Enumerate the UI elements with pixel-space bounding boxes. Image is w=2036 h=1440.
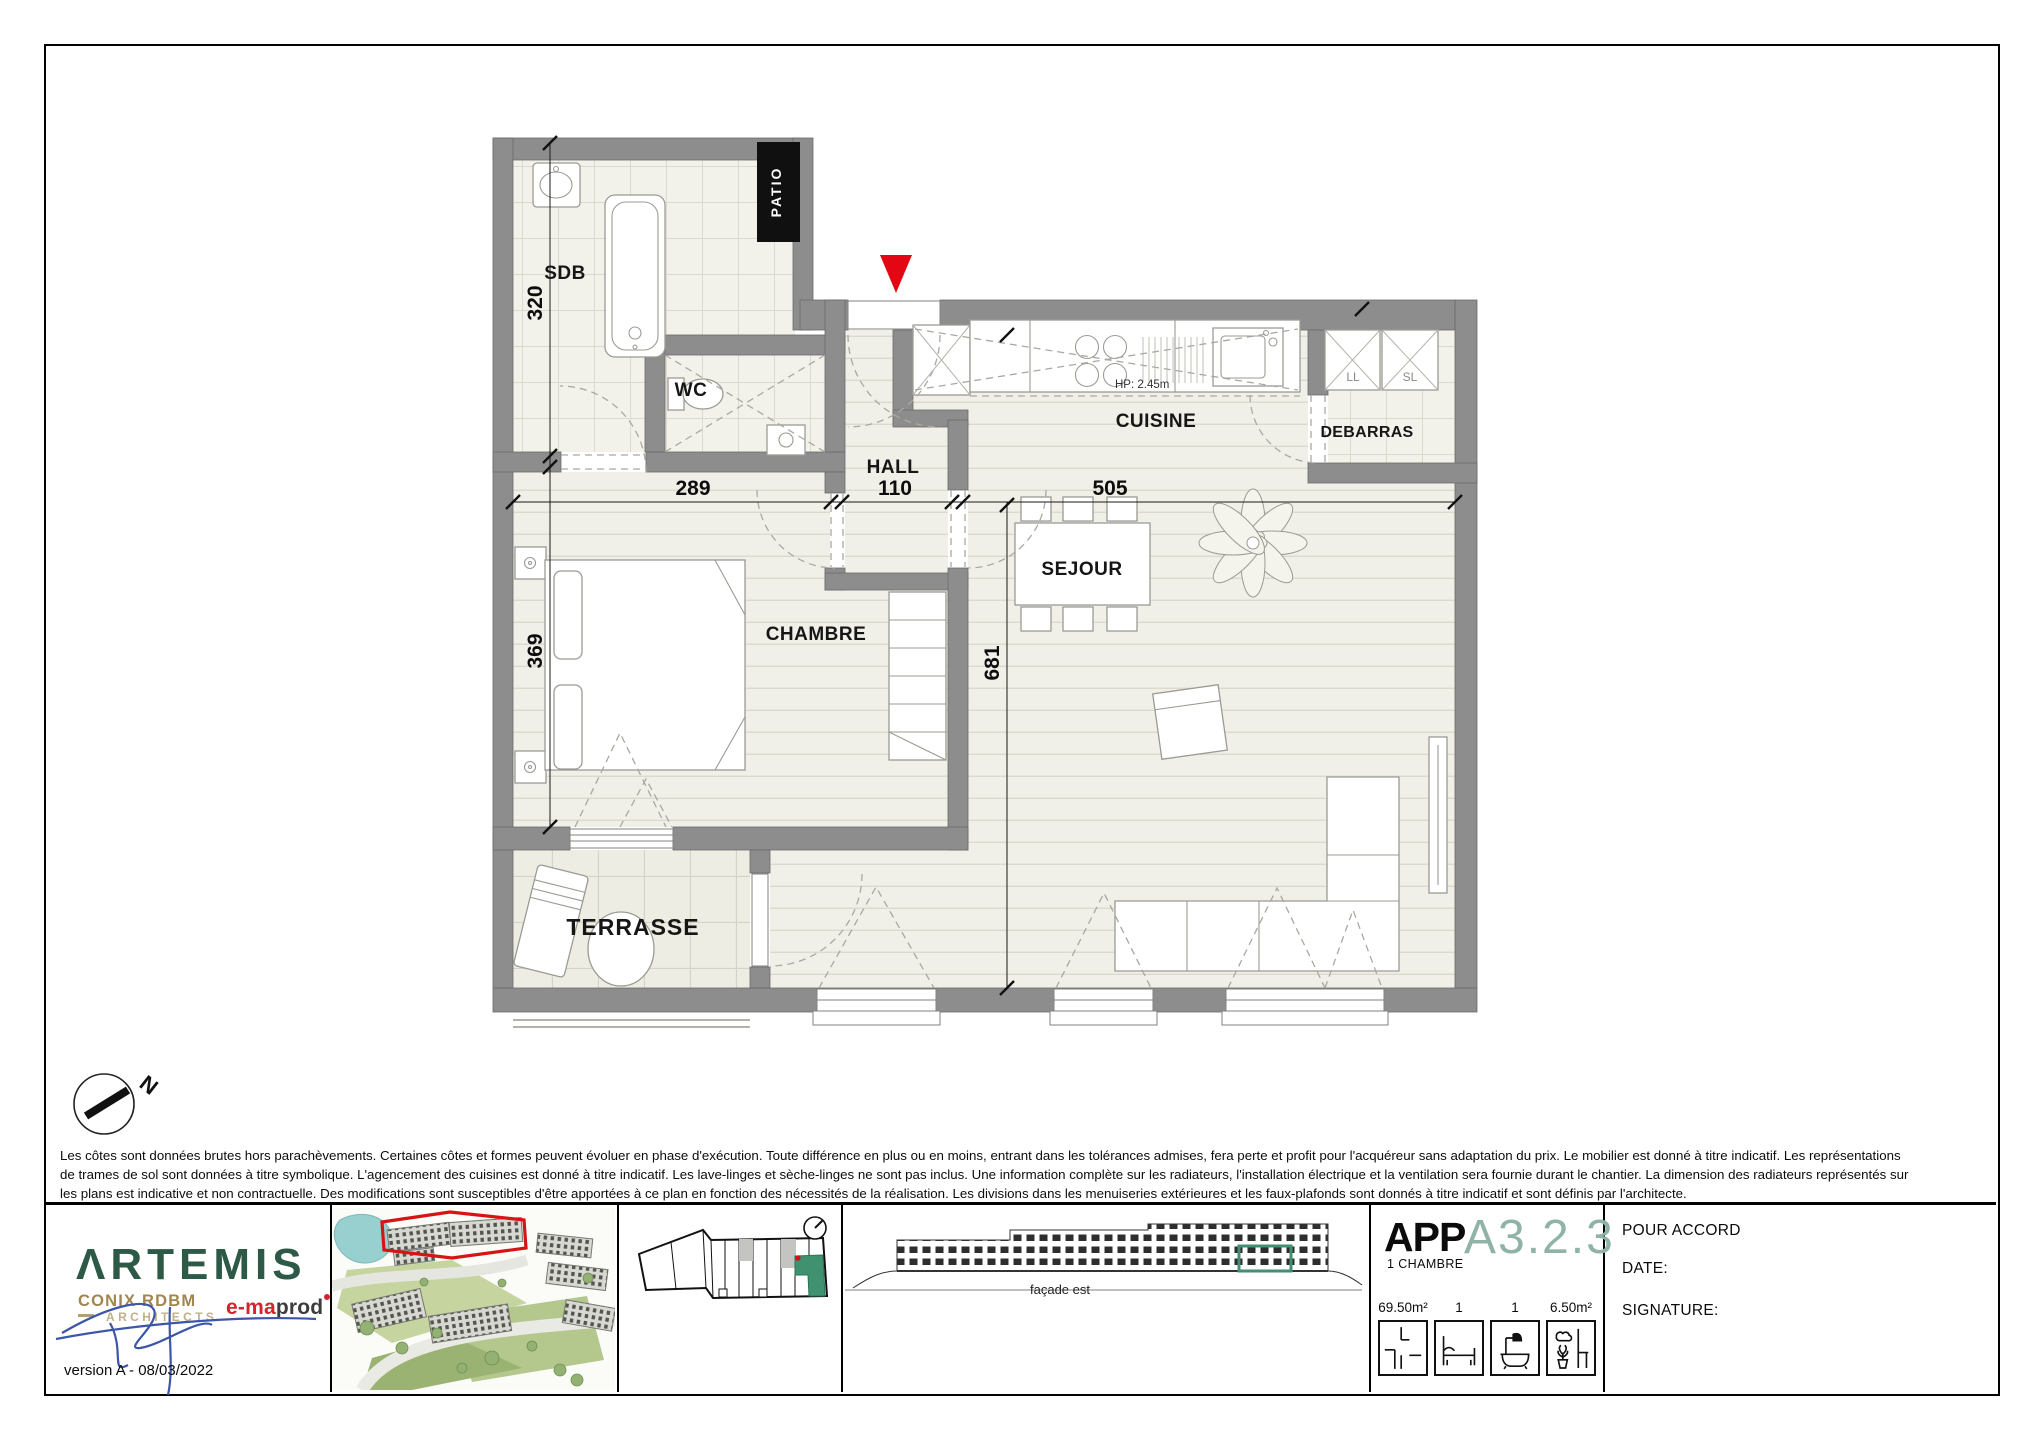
appliance-label-sl: SL — [1403, 370, 1418, 384]
armchair-symbol — [1153, 685, 1228, 760]
nightstand-symbol — [515, 547, 546, 579]
bathtub-symbol — [605, 195, 665, 357]
site-render-image — [332, 1208, 615, 1390]
disclaimer-block: Les côtes sont données brutes hors parac… — [60, 1146, 1990, 1203]
bath-icon — [1490, 1320, 1540, 1376]
stat-bathrooms: 1 — [1490, 1300, 1540, 1376]
unit-stats: 69.50m² 1 1 — [1378, 1300, 1598, 1376]
floorplan-icon — [1378, 1320, 1428, 1376]
stat-bathrooms-value: 1 — [1511, 1300, 1519, 1318]
patio-tag-label: PATIO — [768, 167, 784, 218]
stat-terrace-value: 6.50m² — [1550, 1300, 1592, 1318]
room-label-hall: HALL — [867, 457, 920, 478]
room-label-cuisine: CUISINE — [1116, 411, 1197, 432]
room-label-sejour: SEJOUR — [1041, 559, 1122, 580]
north-letter: N — [135, 1070, 163, 1099]
artemis-logo: ΛRTEMIS — [76, 1240, 307, 1290]
entrance-marker-icon — [880, 255, 912, 293]
stat-bedrooms-value: 1 — [1455, 1300, 1463, 1318]
facade-caption: façade est — [1030, 1282, 1090, 1297]
kitchen-height-note: HP: 2.45m — [1115, 379, 1169, 391]
north-arrow-icon: N — [58, 1056, 188, 1156]
dimension-sejour-height: 681 — [981, 645, 1004, 680]
panel-divider — [1369, 1205, 1371, 1392]
version-label: version A - 08/03/2022 — [64, 1362, 213, 1379]
plant-symbol — [1199, 489, 1307, 597]
bed-icon — [1434, 1320, 1484, 1376]
washbasin-symbol — [767, 425, 805, 455]
stat-terrace: 6.50m² — [1546, 1300, 1596, 1376]
room-label-terrasse: TERRASSE — [566, 914, 699, 940]
unit-code: A3.2.3 — [1464, 1210, 1615, 1265]
approval-title: POUR ACCORD — [1622, 1222, 1741, 1240]
floor-plan-drawing: SDB WC HALL CUISINE DEBARRAS SEJOUR CHAM… — [415, 95, 1510, 1070]
approval-signature-label: SIGNATURE: — [1622, 1302, 1719, 1320]
stat-surface-value: 69.50m² — [1378, 1300, 1428, 1318]
facade-elevation — [843, 1208, 1367, 1390]
disclaimer-line-2: de trames de sol sont données à titre sy… — [60, 1165, 1990, 1184]
dimension-chambre-height: 369 — [524, 633, 547, 668]
room-label-debarras: DEBARRAS — [1320, 424, 1413, 441]
approval-date-label: DATE: — [1622, 1260, 1668, 1278]
plan-sheet: SDB WC HALL CUISINE DEBARRAS SEJOUR CHAM… — [0, 0, 2036, 1440]
unit-entrance-dot — [795, 1255, 800, 1260]
key-plan — [619, 1208, 839, 1390]
dimension-chambre-width: 289 — [675, 477, 710, 500]
disclaimer-line-1: Les côtes sont données brutes hors parac… — [60, 1146, 1990, 1165]
disclaimer-line-3: les plans est indicative et non contract… — [60, 1184, 1990, 1203]
footer-divider — [44, 1202, 1996, 1205]
signature-scribble — [50, 1295, 340, 1400]
stat-surface: 69.50m² — [1378, 1300, 1428, 1376]
room-label-sdb: SDB — [544, 263, 586, 284]
terrace-icon — [1546, 1320, 1596, 1376]
stat-bedrooms: 1 — [1434, 1300, 1484, 1376]
unit-type-label: APP — [1384, 1214, 1465, 1261]
wardrobe-symbol — [889, 592, 946, 760]
dimension-sejour-width: 505 — [1092, 477, 1127, 500]
room-label-wc: WC — [675, 380, 708, 401]
nightstand-symbol — [515, 751, 546, 783]
appliance-label-ll: LL — [1346, 370, 1360, 384]
dimension-hall-width: 110 — [878, 477, 912, 500]
room-label-chambre: CHAMBRE — [766, 624, 867, 645]
dimension-sdb-height: 320 — [524, 285, 547, 320]
unit-bedrooms-label: 1 CHAMBRE — [1387, 1257, 1464, 1271]
